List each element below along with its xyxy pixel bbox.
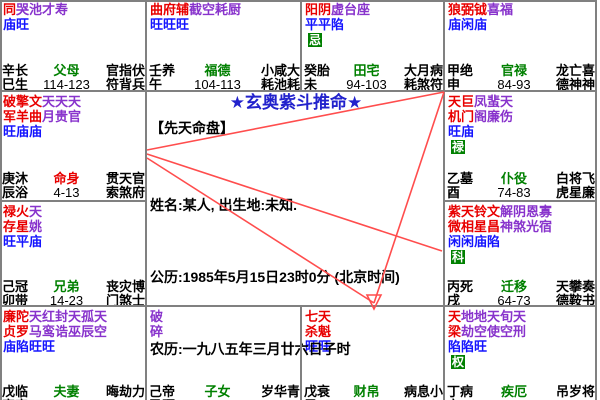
major-stars: 同: [3, 2, 16, 17]
stem-branch-stage: 丁病 亥: [447, 385, 477, 400]
minor-stars: 凤蜚天: [474, 94, 513, 109]
star-list: 紫天铃文解阴恩寡 微相星昌神煞光宿 闲闲庙陷 科: [448, 204, 552, 264]
grid-line: [0, 0, 597, 2]
palace-cell-mao: 禄火天 存星姚 旺平庙 己冠 卯带 兄弟 14-23 丧灾博 门煞士: [0, 202, 147, 307]
cycle-stars: 丧灾博 门煞士: [101, 280, 145, 308]
star-brightness: 旺旺旺: [150, 17, 241, 32]
minor-stars: 天红封天孤天: [29, 309, 107, 324]
cell-footer: 戊临 寅官 夫妻 晦劫力: [2, 385, 145, 400]
major-stars: 梁: [448, 324, 461, 339]
stem-branch-stage: 己冠 卯带: [2, 280, 32, 308]
cycle-stars: 贯天官 索煞府: [101, 172, 145, 200]
star-brightness: 庙陷旺旺: [3, 339, 107, 354]
major-stars: 微相星昌: [448, 219, 500, 234]
grid-line: [443, 0, 445, 400]
star-brightness: 闲闲庙陷: [448, 234, 552, 249]
minor-stars: 阁廉伤: [474, 109, 513, 124]
palace-block: 田宅 94-103: [334, 64, 399, 92]
star-brightness: 旺平庙: [3, 234, 42, 249]
palace-name: 父母: [32, 64, 101, 78]
stem-branch-stage: 丙死 戌: [447, 280, 477, 308]
grid-line: [445, 200, 597, 202]
stem-branch-stage: 甲绝 申: [447, 64, 477, 92]
major-stars: 曲府辅: [150, 2, 189, 17]
star-brightness: 庙旺: [3, 17, 68, 32]
major-stars: 机门: [448, 109, 474, 124]
stem-branch-stage: 庚沐 辰浴: [2, 172, 32, 200]
minor-stars: 哭池才寿: [16, 2, 68, 17]
info-name: 姓名:某人, 出生地:未知.: [150, 193, 400, 217]
minor-stars: 地地天旬天: [461, 309, 526, 324]
star-list: 狼弼钺喜福 庙闲庙: [448, 2, 513, 32]
cycle-stars: 天攀奏 德鞍书: [551, 280, 595, 308]
grid-line: [145, 0, 147, 400]
transform-badge-ji: 忌: [308, 33, 322, 47]
center-info-panel: ★玄奥紫斗推命★ 【先天命盘】 姓名:某人, 出生地:未知. 公历:1985年5…: [147, 92, 445, 307]
palace-cell-si: 同哭池才寿 庙旺 辛长 巳生 父母 114-123 官指伏 符背兵: [0, 0, 147, 92]
star-brightness: 旺庙: [448, 124, 513, 139]
cell-footer: 己冠 卯带 兄弟 14-23 丧灾博 门煞士: [2, 280, 145, 308]
stem-branch-stage: 癸胎 未: [304, 64, 334, 92]
stem-branch-stage: 辛长 巳生: [2, 64, 32, 92]
cycle-stars: 白将飞 虎星廉: [551, 172, 595, 200]
palace-block: 迁移 64-73: [477, 280, 551, 308]
cycle-stars: 龙亡喜 德神神: [551, 64, 595, 92]
palace-cell-yin: 廉陀天红封天孤天 贞罗马鸾诰巫辰空 庙陷旺旺 戊临 寅官 夫妻 晦劫力: [0, 307, 147, 400]
grid-line: [0, 90, 597, 92]
major-stars: 禄火: [3, 204, 29, 219]
star-brightness: 陷陷旺: [448, 339, 526, 354]
star-brightness: 平平陷: [305, 17, 370, 32]
palace-block: 父母 114-123: [32, 64, 101, 92]
palace-cell-hai: 天地地天旬天 梁劫空使空刑 陷陷旺 权 丁病 亥 疾厄 吊岁将: [445, 307, 597, 400]
info-lunar-date: 农历:一九八五年三月廿六日子时: [150, 337, 400, 361]
age-range: 74-83: [477, 186, 551, 200]
cell-footer: 乙墓 酉 仆役 74-83 白将飞 虎星廉: [447, 172, 595, 200]
cycle-stars: 病息小: [399, 385, 443, 400]
star-list: 同哭池才寿 庙旺: [3, 2, 68, 32]
cell-footer: 壬养 午 福德 104-113 小咸大 耗池耗: [149, 64, 300, 92]
transform-badge-lu: 禄: [451, 140, 465, 154]
minor-stars: 截空耗厨: [189, 2, 241, 17]
major-stars: 狼弼钺: [448, 2, 487, 17]
minor-stars: 喜福: [487, 2, 513, 17]
grid-line: [300, 0, 302, 92]
cycle-stars: 小咸大 耗池耗: [256, 64, 300, 92]
star-list: 天巨凤蜚天 机门阁廉伤 旺庙 禄: [448, 94, 513, 154]
transform-badge-ke: 科: [451, 250, 465, 264]
palace-name: 官禄: [477, 64, 551, 78]
minor-stars: 姚: [29, 219, 42, 234]
grid-line: [0, 200, 147, 202]
age-range: 4-13: [32, 186, 101, 200]
minor-stars: 神煞光宿: [500, 219, 552, 234]
palace-name: 田宅: [334, 64, 399, 78]
palace-name: 福德: [179, 64, 256, 78]
star-brightness: 庙闲庙: [448, 17, 513, 32]
transform-badge-quan: 权: [451, 355, 465, 369]
cell-footer: 甲绝 申 官禄 84-93 龙亡喜 德神神: [447, 64, 595, 92]
palace-block: 官禄 84-93: [477, 64, 551, 92]
star-list: 天地地天旬天 梁劫空使空刑 陷陷旺 权: [448, 309, 526, 369]
birth-info: 姓名:某人, 出生地:未知. 公历:1985年5月15日23时0分 (北京时间)…: [150, 145, 400, 400]
palace-cell-xu: 紫天铃文解阴恩寡 微相星昌神煞光宿 闲闲庙陷 科 丙死 戌 迁移 64-73 天…: [445, 202, 597, 307]
cycle-stars: 大月病 耗煞符: [399, 64, 443, 92]
palace-cell-you: 天巨凤蜚天 机门阁廉伤 旺庙 禄 乙墓 酉 仆役 74-83 白将飞 虎星廉: [445, 92, 597, 202]
cycle-stars: 晦劫力: [101, 385, 145, 400]
cell-footer: 庚沐 辰浴 命身 4-13 贯天官 索煞府: [2, 172, 145, 200]
major-stars: 紫天铃文: [448, 204, 500, 219]
palace-block: 仆役 74-83: [477, 172, 551, 200]
star-list: 廉陀天红封天孤天 贞罗马鸾诰巫辰空 庙陷旺旺: [3, 309, 107, 354]
grid-line: [0, 305, 597, 307]
stem-branch-stage: 壬养 午: [149, 64, 179, 92]
palace-name: 兄弟: [32, 280, 101, 294]
grid-line: [595, 0, 597, 400]
palace-cell-chen-ming: 破擎文天天天 军羊曲月贵官 旺庙庙 庚沐 辰浴 命身 4-13 贯天官 索煞府: [0, 92, 147, 202]
chart-section-label: 【先天命盘】: [150, 118, 234, 138]
stem-branch-stage: 戊临 寅官: [2, 385, 32, 400]
minor-stars: 马鸾诰巫辰空: [29, 324, 107, 339]
major-stars: 廉陀: [3, 309, 29, 324]
palace-block: 兄弟 14-23: [32, 280, 101, 308]
cell-footer: 丁病 亥 疾厄 吊岁将: [447, 385, 595, 400]
palace-cell-wu: 曲府辅截空耗厨 旺旺旺 壬养 午 福德 104-113 小咸大 耗池耗: [147, 0, 302, 92]
star-list: 阳阴虚台座 平平陷 忌: [305, 2, 370, 47]
ziwei-natal-chart: 同哭池才寿 庙旺 辛长 巳生 父母 114-123 官指伏 符背兵 曲府辅截空耗…: [0, 0, 600, 400]
palace-name: 迁移: [477, 280, 551, 294]
palace-cell-shen: 狼弼钺喜福 庙闲庙 甲绝 申 官禄 84-93 龙亡喜 德神神: [445, 0, 597, 92]
star-list: 曲府辅截空耗厨 旺旺旺: [150, 2, 241, 32]
major-stars: 阳阴: [305, 2, 331, 17]
star-brightness: 旺庙庙: [3, 124, 81, 139]
palace-name-life-body: 命身: [32, 172, 101, 186]
stem-branch-stage: 乙墓 酉: [447, 172, 477, 200]
cycle-stars: 吊岁将: [551, 385, 595, 400]
minor-stars: 月贵官: [42, 109, 81, 124]
star-list: 禄火天 存星姚 旺平庙: [3, 204, 42, 249]
palace-name: 仆役: [477, 172, 551, 186]
major-stars: 贞罗: [3, 324, 29, 339]
cycle-stars: 官指伏 符背兵: [101, 64, 145, 92]
app-title: ★玄奥紫斗推命★: [147, 94, 445, 112]
cell-footer: 辛长 巳生 父母 114-123 官指伏 符背兵: [2, 64, 145, 92]
major-stars: 军羊曲: [3, 109, 42, 124]
palace-name: 疾厄: [477, 385, 551, 399]
palace-block: 疾厄: [477, 385, 551, 400]
palace-cell-wei: 阳阴虚台座 平平陷 忌 癸胎 未 田宅 94-103 大月病 耗煞符: [302, 0, 445, 92]
minor-stars: 解阴恩寡: [500, 204, 552, 219]
palace-block: 福德 104-113: [179, 64, 256, 92]
info-gregorian-date: 公历:1985年5月15日23时0分 (北京时间): [150, 265, 400, 289]
star-list: 破擎文天天天 军羊曲月贵官 旺庙庙: [3, 94, 81, 139]
cell-footer: 丙死 戌 迁移 64-73 天攀奏 德鞍书: [447, 280, 595, 308]
major-stars: 破擎文: [3, 94, 42, 109]
minor-stars: 天: [29, 204, 42, 219]
minor-stars: 天天天: [42, 94, 81, 109]
grid-line: [0, 0, 2, 400]
major-stars: 天: [448, 309, 461, 324]
minor-stars: 虚台座: [331, 2, 370, 17]
palace-name: 夫妻: [32, 385, 101, 399]
palace-block: 夫妻: [32, 385, 101, 400]
cell-footer: 癸胎 未 田宅 94-103 大月病 耗煞符: [304, 64, 443, 92]
major-stars: 存星: [3, 219, 29, 234]
minor-stars: 劫空使空刑: [461, 324, 526, 339]
major-stars: 天巨: [448, 94, 474, 109]
grid-line: [300, 305, 302, 400]
palace-block: 命身 4-13: [32, 172, 101, 200]
